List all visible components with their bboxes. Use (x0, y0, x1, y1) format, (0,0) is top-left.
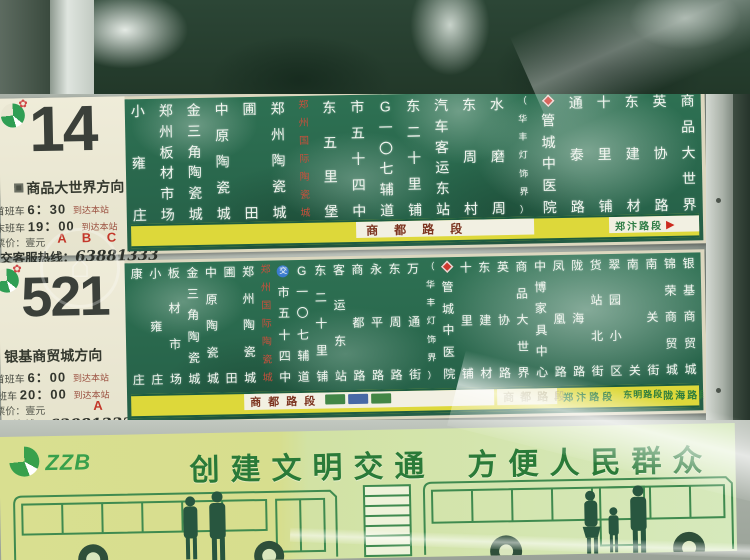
station-char: 世 (682, 171, 696, 185)
station-char: 丰 (518, 133, 527, 142)
station-char: 圃 (242, 102, 256, 116)
station-char: 运 (333, 299, 345, 311)
station-char: 商 (351, 264, 363, 276)
segment-chip (371, 393, 391, 403)
station-char: 里 (461, 315, 473, 327)
station-column: 英协路 (652, 94, 668, 212)
station-char: 角 (187, 309, 199, 321)
station-char: 品 (681, 119, 695, 133)
segment-box: 商都路段 (497, 388, 557, 405)
station-char: 丰 (426, 299, 435, 308)
station-char: 站 (590, 295, 602, 307)
station-char: 市 (350, 100, 364, 114)
station-char: 田 (244, 206, 258, 220)
station-char: 锦 (664, 258, 676, 270)
station-char: 辅 (380, 182, 394, 196)
station-char: 里 (316, 344, 328, 356)
station-char: 都 (352, 317, 364, 329)
station-char: 园 (609, 294, 621, 306)
bus-company-logo-icon (9, 446, 40, 477)
station-char: 瓷 (206, 346, 218, 358)
station-char: 东 (624, 95, 638, 109)
station-char: 中 (536, 345, 548, 357)
station-char: ） (428, 371, 437, 380)
station-column: 水磨周 (490, 97, 506, 215)
station-char: 瓷 (300, 191, 310, 201)
station-char: 州 (261, 284, 271, 294)
station-column: G一〇七辅道 (378, 99, 394, 217)
station-column: 郑州国际陶瓷城 (261, 266, 273, 384)
station-char: 泰 (570, 148, 584, 162)
station-char: 市 (160, 187, 174, 201)
station-char: 具 (535, 324, 547, 336)
station-column: 中原陶瓷城 (214, 102, 230, 220)
station-column: 南关街 (645, 258, 659, 376)
station-char: 协 (498, 314, 510, 326)
station-char: 小 (609, 329, 621, 341)
station-char: 大 (516, 314, 528, 326)
station-char: 客 (435, 140, 449, 154)
station-char: 医 (443, 346, 455, 358)
station-char: 饰 (519, 169, 528, 178)
station-char: 小 (149, 268, 161, 280)
station-char: 场 (170, 373, 182, 385)
station-char: 万 (407, 263, 419, 275)
route-number: 521 (21, 263, 110, 330)
station-char: 城 (244, 372, 256, 384)
station-char: 城 (442, 303, 454, 315)
station-char: 客 (333, 264, 345, 276)
route-14-panel: ✿ 14 商品大世界方向 首班车 6：30 到达本站 末班车 19：00 到达本… (0, 85, 707, 257)
station-column: 东五里堡 (322, 100, 338, 218)
station-char: 七 (379, 162, 393, 176)
station-char: 一 (296, 286, 308, 298)
station-column: 小雍庄 (149, 268, 163, 386)
station-char: 灯 (427, 317, 436, 326)
frame-edge-left (50, 0, 94, 94)
station-char: ） (520, 206, 529, 215)
station-char: 货 (590, 259, 602, 271)
station-char: 三 (187, 124, 201, 138)
station-char: 商 (683, 310, 695, 322)
station-column: 商品大世界 (515, 261, 529, 379)
station-column: 中原陶瓷城 (205, 267, 219, 385)
station-char: 陶 (243, 319, 255, 331)
station-char: 三 (187, 288, 199, 300)
station-char: 里 (407, 177, 421, 191)
station-char: 城 (189, 207, 203, 221)
station-char: 际 (299, 155, 309, 165)
station-column: 管城中医院 (441, 262, 455, 380)
station-column: 东建材 (478, 261, 492, 379)
station-column: 锦荣商贸城 (664, 258, 678, 376)
station-char: 心 (536, 366, 548, 378)
station-column: 永平路 (370, 263, 384, 381)
fare-zones: A (93, 398, 109, 413)
station-column: 金三角陶瓷城 (187, 103, 203, 221)
station-char: 建 (479, 314, 491, 326)
station-char: 东 (334, 335, 346, 347)
station-column: 东周路 (388, 263, 402, 381)
station-char: 堡 (324, 204, 338, 218)
station-char: 田 (225, 372, 237, 384)
metal-frame-right (706, 88, 734, 432)
station-column: 郑州板材市场 (159, 103, 175, 221)
station-char: 凰 (553, 313, 565, 325)
station-char: 协 (653, 146, 667, 160)
station-char: 康 (131, 268, 143, 280)
station-char: 材 (626, 198, 640, 212)
station-char: 车 (434, 119, 448, 133)
station-char: （ (518, 97, 527, 106)
station-char: 十 (278, 329, 290, 341)
station-char: 界 (517, 367, 529, 379)
station-char: 路 (372, 369, 384, 381)
station-column: 货站北街 (590, 259, 604, 377)
station-char: 郑 (298, 101, 308, 111)
station-char: 路 (554, 366, 566, 378)
station-char: 界 (682, 197, 696, 211)
segment-box: 商都路段 (244, 389, 494, 410)
station-char: 东 (478, 261, 490, 273)
station-char: 雍 (150, 321, 162, 333)
station-char: 庄 (133, 374, 145, 386)
segment-chip (325, 394, 345, 404)
station-char: 庄 (133, 208, 147, 222)
station-char: 〇 (379, 141, 393, 155)
station-char: 路 (390, 369, 402, 381)
station-char: 荣 (664, 284, 676, 296)
station-char: 陶 (262, 338, 272, 348)
station-char: 里 (598, 147, 612, 161)
segment-box: 商都路段 (356, 219, 534, 238)
station-char: 路 (499, 367, 511, 379)
station-char: 城 (207, 373, 219, 385)
station-char: 街 (592, 365, 604, 377)
station-char: 陶 (300, 173, 310, 183)
station-char: 城 (263, 374, 273, 384)
direction-row: 商品大世界方向 (14, 176, 124, 198)
station-char: 周 (389, 316, 401, 328)
station-char: 材 (160, 166, 174, 180)
station-char: 路 (654, 198, 668, 212)
station-char: 东 (388, 263, 400, 275)
station-char: 陶 (215, 154, 229, 168)
station-column: 中博家具中心 (534, 260, 548, 378)
station-column: 东二十里铺 (406, 99, 422, 217)
station-char: 二 (407, 125, 421, 139)
station-char: 家 (535, 303, 547, 315)
last-bus-time: 20：00 (20, 387, 67, 403)
station-char: 五 (323, 135, 337, 149)
station-column: （华丰灯饰界） (518, 97, 529, 215)
slogan-banner: ZZB 创建文明交通 方便人民群众 (0, 423, 737, 560)
station-char: 铺 (408, 203, 422, 217)
station-column: 通泰路 (569, 96, 585, 214)
station-char: 州 (271, 127, 285, 141)
station-char: 中 (534, 260, 546, 272)
station-char: 场 (161, 207, 175, 221)
station-char: 郑 (261, 266, 271, 276)
station-char: 街 (409, 369, 421, 381)
station-column: 万通街 (407, 263, 421, 381)
station-char: 东 (322, 100, 336, 114)
station-column: 翠园小区 (608, 259, 622, 377)
station-char: 永 (370, 263, 382, 275)
station-char: 华 (518, 115, 527, 124)
road-segment-strip: 商都路段 商都路段 郑汴路段 东明路段 陇海路段 (131, 383, 699, 418)
station-column: 小雍庄 (131, 104, 147, 222)
station-char: 二 (315, 291, 327, 303)
screw-icon (716, 198, 721, 203)
station-char: 板 (168, 267, 180, 279)
station-char: 际 (262, 320, 272, 330)
station-char: 大 (681, 145, 695, 159)
station-column: 商品大世界 (680, 93, 696, 211)
transfer-badge-icon: 交 (277, 265, 289, 277)
station-char: G (297, 265, 307, 277)
station-char: 城 (684, 363, 696, 375)
segment-label: 商都路段 (356, 219, 478, 238)
station-char: 区 (610, 365, 622, 377)
flower-icon: ✿ (18, 99, 27, 110)
station-char: 四 (279, 350, 291, 362)
station-char: 英 (652, 94, 666, 108)
station-char: 材 (480, 367, 492, 379)
station-column: 管城中医院 (541, 96, 557, 214)
station-char: 陇 (571, 260, 583, 272)
station-char: 村 (464, 202, 478, 216)
station-char: 东 (314, 265, 326, 277)
station-column: 东周村 (462, 98, 478, 216)
station-char: 十 (315, 317, 327, 329)
station-char: 中 (352, 204, 366, 218)
arrive-note: 到达本站 (73, 373, 109, 384)
station-char: 十 (351, 152, 365, 166)
station-char: 北 (591, 330, 603, 342)
station-column: 十里铺 (597, 95, 613, 213)
route-number: 14 (28, 91, 97, 166)
station-column: 南关 (627, 259, 641, 377)
station-column: 郑州陶瓷城 (270, 101, 286, 219)
station-char: 贸 (684, 337, 696, 349)
station-char: 东 (462, 98, 476, 112)
station-char: 瓷 (188, 352, 200, 364)
station-column: 东建材 (624, 95, 640, 213)
station-char: 城 (272, 205, 286, 219)
station-column: 金三角陶瓷城 (186, 267, 200, 385)
direction-label: 银基商贸城方向 (4, 347, 102, 365)
bus-company-logo-text: ZZB (45, 449, 91, 476)
bus-company-logo-icon: ✿ (1, 103, 25, 127)
hospital-icon (441, 260, 454, 273)
hospital-icon (541, 94, 554, 107)
station-char: 州 (299, 119, 309, 129)
station-char: 十 (460, 262, 472, 274)
segment-label: 商都路段 (244, 393, 322, 410)
route-14-info-box: ✿ 14 商品大世界方向 首班车 6：30 到达本站 末班车 19：00 到达本… (0, 96, 128, 256)
station-char: 路 (353, 370, 365, 382)
station-char: 七 (297, 328, 309, 340)
station-char: 医 (542, 178, 556, 192)
station-char: 周 (463, 150, 477, 164)
station-char: 瓷 (244, 345, 256, 357)
station-column: 圃田 (242, 102, 258, 220)
station-char: （ (426, 262, 435, 271)
segment-chips (322, 390, 391, 409)
station-char: 铺 (599, 199, 613, 213)
station-char: 瓷 (216, 180, 230, 194)
station-char: 商 (680, 93, 694, 107)
station-char: 国 (299, 137, 309, 147)
station-char: 运 (435, 161, 449, 175)
station-char: 南 (627, 259, 639, 271)
station-column: 圃田 (223, 266, 237, 384)
station-char: 灯 (519, 151, 528, 160)
station-char: 圃 (223, 266, 235, 278)
station-char: 英 (497, 261, 509, 273)
station-char: 原 (205, 293, 217, 305)
direction-row: 银基商贸城方向 (4, 345, 102, 367)
station-column: 英协路 (497, 261, 511, 379)
station-char: 中 (279, 371, 291, 383)
station-column: 商都路 (351, 264, 365, 382)
station-char: 贸 (665, 337, 677, 349)
station-char: 五 (351, 126, 365, 140)
route-521-station-board: 康庄小雍庄板材市场金三角陶瓷城中原陶瓷城圃田郑州陶瓷城郑州国际陶瓷城交市五十四中… (125, 252, 704, 421)
station-char: 城 (188, 373, 200, 385)
station-char: 瓷 (262, 356, 272, 366)
station-char: 州 (159, 124, 173, 138)
station-column: 汽车客运东站 (434, 98, 450, 216)
station-column: 东二十里铺 (314, 265, 328, 383)
station-char: 雍 (132, 156, 146, 170)
station-char: 郑 (270, 101, 284, 115)
station-char: 瓷 (188, 186, 202, 200)
bus-stop-sign-photo: ✿ 14 商品大世界方向 首班车 6：30 到达本站 末班车 19：00 到达本… (0, 0, 750, 560)
station-char: 站 (436, 202, 450, 216)
station-column: 银基商贸城 (682, 257, 696, 375)
screw-icon (716, 388, 721, 393)
station-char: 世 (517, 340, 529, 352)
station-char: 庄 (151, 374, 163, 386)
station-char: 华 (426, 281, 435, 290)
station-char: 郑 (159, 103, 173, 117)
station-char: 海 (572, 313, 584, 325)
glass-reflection-trees (0, 0, 750, 94)
station-char: 中 (542, 156, 556, 170)
route-14-station-board: 小雍庄郑州板材市场金三角陶瓷城中原陶瓷城圃田郑州陶瓷城郑州国际陶瓷城东五里堡市五… (125, 88, 704, 251)
segment-label: 东明路段 (623, 387, 663, 402)
station-char: 道 (380, 203, 394, 217)
segment-chip (348, 394, 368, 404)
segment-box: 郑汴路段 ▶ (609, 215, 699, 233)
station-char: 院 (443, 368, 455, 380)
station-char: 一 (378, 120, 392, 134)
station-column: 郑州国际陶瓷城 (298, 101, 310, 219)
station-char: 通 (408, 316, 420, 328)
station-char: 通 (569, 96, 583, 110)
segment-label: 陇海路段 (663, 386, 703, 401)
station-char: 博 (534, 281, 546, 293)
station-char: 翠 (608, 259, 620, 271)
last-bus-label: 末班车 (0, 391, 17, 403)
station-column: 客运东站 (333, 264, 347, 382)
station-char: 市 (169, 338, 181, 350)
station-char: 品 (516, 287, 528, 299)
station-column: 郑州陶瓷城 (242, 266, 256, 384)
station-char: 汽 (434, 98, 448, 112)
station-char: 关 (629, 364, 641, 376)
station-char: 界 (427, 353, 436, 362)
station-char: 道 (298, 371, 310, 383)
station-char: 城 (216, 206, 230, 220)
station-char: 国 (261, 302, 271, 312)
station-char: 凤 (552, 260, 564, 272)
station-char: 街 (647, 364, 659, 376)
station-char: 陶 (188, 331, 200, 343)
station-char: 板 (159, 145, 173, 159)
bus-illustration (0, 475, 737, 560)
station-char: 商 (665, 311, 677, 323)
station-column: 板材市场 (168, 267, 182, 385)
station-char: 五 (278, 308, 290, 320)
station-char: 小 (131, 104, 145, 118)
station-char: 商 (515, 261, 527, 273)
station-column: 交市五十四中 (277, 265, 291, 383)
station-char: 路 (573, 366, 585, 378)
segment-label-faint: 商都路段 (503, 388, 571, 405)
station-column: （华丰灯饰界） (426, 262, 437, 380)
station-char: 路 (571, 200, 585, 214)
station-char: 四 (352, 178, 366, 192)
station-char: 周 (492, 201, 506, 215)
station-char: 〇 (296, 307, 308, 319)
station-column: 凤凰路 (552, 260, 566, 378)
station-char: 金 (187, 103, 201, 117)
station-char: 饰 (427, 335, 436, 344)
glass-reflection-right (733, 88, 750, 432)
bus-company-logo-icon: ✿ (0, 268, 19, 292)
station-char: 市 (277, 286, 289, 298)
arrow-icon: ▶ (666, 217, 675, 230)
station-char: 管 (541, 113, 555, 127)
station-char: 管 (441, 281, 453, 293)
station-char: 银 (682, 257, 694, 269)
station-column: 陇海路 (571, 260, 585, 378)
station-column: G一〇七辅道 (296, 265, 310, 383)
station-char: 中 (442, 324, 454, 336)
station-column: 十里铺 (460, 262, 474, 380)
station-char: 陶 (271, 153, 285, 167)
station-char: 城 (300, 209, 310, 219)
station-char: 中 (205, 267, 217, 279)
station-char: 十 (407, 151, 421, 165)
station-columns: 康庄小雍庄板材市场金三角陶瓷城中原陶瓷城圃田郑州陶瓷城郑州国际陶瓷城交市五十四中… (131, 257, 697, 386)
last-bus-label: 末班车 (0, 223, 25, 235)
station-char: 城 (541, 135, 555, 149)
station-char: 东 (436, 181, 450, 195)
route-521-panel: ✿ 521 银基商贸城方向 首班车 6：00 到达本站 末班车 20：00 到达… (0, 249, 708, 427)
station-char: 铺 (316, 370, 328, 382)
station-char: 辅 (297, 350, 309, 362)
station-char: 瓷 (272, 179, 286, 193)
direction-label: 商品大世界方向 (26, 178, 124, 196)
arrive-note: 到达本站 (73, 205, 109, 216)
station-column: 康庄 (131, 268, 145, 386)
frame-edge-outer (0, 0, 50, 94)
station-char: 南 (645, 258, 657, 270)
